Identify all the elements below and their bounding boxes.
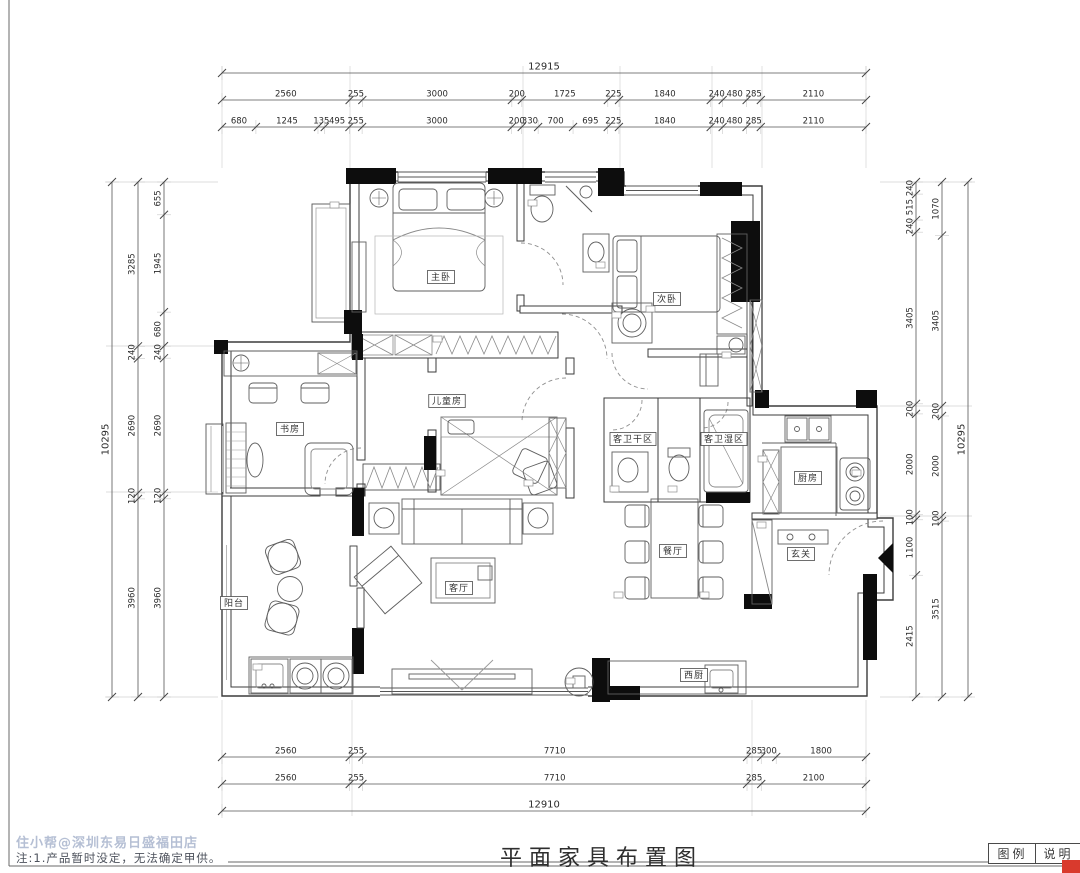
room-label-kitchen: 厨房	[795, 472, 822, 485]
room-label-master-bedroom: 主卧	[428, 271, 455, 284]
svg-text:2560: 2560	[275, 90, 297, 100]
room-label-study: 书房	[277, 423, 304, 436]
kitchen-fixtures	[762, 416, 870, 516]
svg-text:255: 255	[348, 90, 364, 100]
svg-text:12915: 12915	[528, 62, 560, 73]
svg-text:240: 240	[906, 218, 916, 234]
svg-text:700: 700	[547, 117, 563, 127]
svg-text:225: 225	[605, 117, 621, 127]
svg-text:120: 120	[154, 488, 164, 504]
svg-text:100: 100	[906, 509, 916, 525]
svg-text:客卫湿区: 客卫湿区	[704, 433, 744, 445]
legend-tab: 图例	[988, 843, 1037, 864]
svg-text:7710: 7710	[544, 774, 566, 784]
svg-text:西厨: 西厨	[684, 670, 704, 681]
svg-text:255: 255	[348, 117, 364, 127]
svg-text:玄关: 玄关	[791, 548, 811, 560]
svg-text:2560: 2560	[275, 747, 297, 757]
room-label-foyer: 玄关	[788, 548, 815, 561]
kids-cabinet	[549, 418, 566, 488]
svg-text:240: 240	[154, 344, 164, 360]
svg-text:3000: 3000	[426, 90, 448, 100]
svg-text:1245: 1245	[276, 117, 298, 127]
svg-text:240: 240	[128, 344, 138, 360]
svg-text:240: 240	[709, 117, 725, 127]
svg-text:495: 495	[329, 117, 345, 127]
svg-text:次卧: 次卧	[657, 293, 677, 305]
svg-text:255: 255	[348, 747, 364, 757]
svg-text:2690: 2690	[154, 415, 164, 437]
svg-text:200: 200	[932, 403, 942, 419]
svg-text:2690: 2690	[128, 415, 138, 437]
svg-text:200: 200	[906, 401, 916, 417]
svg-text:7710: 7710	[544, 747, 566, 757]
living-room-furniture	[354, 499, 593, 696]
room-label-dining-room: 餐厅	[660, 545, 687, 558]
svg-text:1840: 1840	[654, 90, 676, 100]
svg-text:3960: 3960	[128, 587, 138, 609]
svg-text:240: 240	[709, 90, 725, 100]
svg-text:255: 255	[348, 774, 364, 784]
svg-text:680: 680	[231, 117, 247, 127]
hall-bench	[700, 354, 718, 386]
svg-text:285: 285	[746, 90, 762, 100]
svg-text:3960: 3960	[154, 587, 164, 609]
exterior-walls	[222, 172, 893, 696]
svg-text:儿童房: 儿童房	[432, 395, 462, 407]
master-bathroom-fixtures	[530, 185, 609, 272]
room-label-balcony: 阳台	[221, 597, 248, 610]
svg-text:120: 120	[128, 488, 138, 504]
svg-text:515: 515	[906, 199, 916, 215]
master-wardrobe	[352, 332, 558, 358]
svg-text:10295: 10295	[101, 424, 112, 456]
svg-text:2000: 2000	[932, 455, 942, 477]
svg-text:1725: 1725	[554, 90, 576, 100]
svg-text:300: 300	[761, 747, 777, 757]
svg-text:书房: 书房	[280, 423, 300, 435]
svg-text:480: 480	[727, 90, 743, 100]
red-stamp-icon	[1062, 860, 1080, 873]
svg-text:480: 480	[726, 117, 742, 127]
svg-text:100: 100	[932, 510, 942, 526]
svg-text:主卧: 主卧	[431, 271, 451, 283]
svg-text:2110: 2110	[803, 117, 825, 127]
svg-text:10295: 10295	[957, 424, 968, 456]
room-label-west-kitchen: 西厨	[681, 669, 708, 682]
svg-text:285: 285	[746, 117, 762, 127]
room-label-guest-bath-wet: 客卫湿区	[701, 433, 747, 446]
floor-plan-drawing: 1291525602553000200172522518402404802852…	[0, 0, 1080, 873]
svg-text:240: 240	[906, 180, 916, 196]
svg-text:695: 695	[582, 117, 598, 127]
svg-text:客卫干区: 客卫干区	[613, 433, 653, 445]
svg-text:3000: 3000	[426, 117, 448, 127]
room-label-guest-bath-dry: 客卫干区	[610, 433, 656, 446]
entry-door-arrow	[878, 543, 893, 573]
sheet-note: 注:1.产品暂时没定，无法确定甲供。	[16, 850, 221, 866]
svg-text:客厅: 客厅	[449, 582, 469, 594]
svg-text:655: 655	[154, 190, 164, 206]
svg-text:135: 135	[313, 117, 329, 127]
svg-text:1945: 1945	[154, 253, 164, 275]
watermark: 住小帮@深圳东易日盛福田店	[16, 832, 198, 851]
svg-text:厨房: 厨房	[798, 472, 818, 484]
balcony-slider	[350, 546, 364, 628]
sheet-title: 平面家具布置图	[500, 840, 703, 872]
room-label-second-bedroom: 次卧	[654, 293, 681, 306]
svg-text:1100: 1100	[906, 537, 916, 559]
svg-text:2000: 2000	[906, 454, 916, 476]
svg-text:3285: 3285	[128, 253, 138, 275]
svg-text:餐厅: 餐厅	[663, 545, 683, 557]
svg-text:2110: 2110	[803, 90, 825, 100]
svg-text:285: 285	[746, 774, 762, 784]
svg-text:2100: 2100	[803, 774, 825, 784]
room-label-living-room: 客厅	[446, 582, 473, 595]
svg-text:阳台: 阳台	[224, 597, 244, 609]
drawing-sheet: 1291525602553000200172522518402404802852…	[0, 0, 1080, 873]
room-label-kids-room: 儿童房	[429, 395, 466, 408]
svg-text:2560: 2560	[275, 774, 297, 784]
svg-text:3515: 3515	[932, 598, 942, 620]
kids-bed	[441, 417, 557, 495]
svg-text:1800: 1800	[810, 747, 832, 757]
svg-text:1840: 1840	[654, 117, 676, 127]
svg-text:2415: 2415	[906, 625, 916, 647]
svg-text:1070: 1070	[932, 198, 942, 220]
svg-text:3405: 3405	[906, 307, 916, 329]
svg-text:225: 225	[605, 90, 621, 100]
svg-text:12910: 12910	[528, 800, 560, 811]
sheet-border	[9, 0, 1080, 866]
furniture	[224, 183, 870, 696]
svg-text:680: 680	[154, 321, 164, 337]
svg-text:200: 200	[509, 90, 525, 100]
svg-text:330: 330	[522, 117, 538, 127]
svg-text:3405: 3405	[932, 310, 942, 332]
balcony-furniture	[249, 538, 353, 694]
